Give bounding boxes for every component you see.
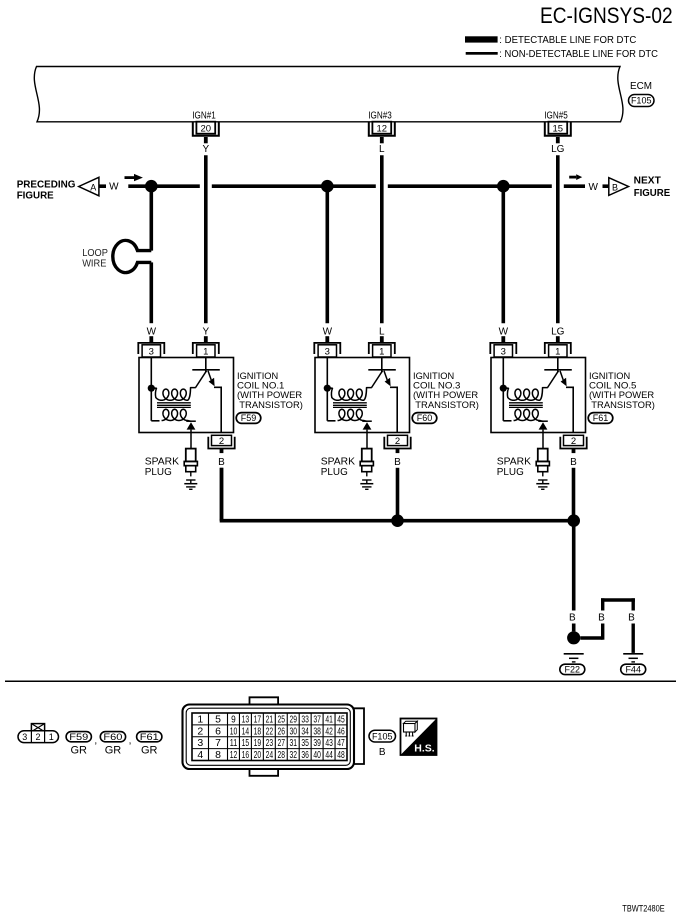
- svg-text:18: 18: [254, 725, 262, 737]
- svg-text:1: 1: [203, 347, 208, 358]
- svg-text:14: 14: [242, 725, 250, 737]
- svg-text:31: 31: [289, 737, 297, 749]
- svg-text:Y: Y: [202, 326, 209, 337]
- svg-text:12: 12: [377, 123, 388, 134]
- svg-text:LG: LG: [551, 326, 565, 337]
- svg-text:PLUG: PLUG: [497, 467, 524, 478]
- svg-text:IGN#3: IGN#3: [368, 111, 392, 122]
- svg-text:1: 1: [379, 347, 384, 358]
- svg-text:7: 7: [215, 737, 221, 749]
- svg-text:37: 37: [313, 713, 321, 725]
- svg-text:F105: F105: [372, 731, 393, 741]
- svg-text:38: 38: [313, 725, 321, 737]
- svg-text:3: 3: [325, 347, 330, 358]
- svg-text:LOOP: LOOP: [82, 248, 108, 259]
- svg-text:15: 15: [242, 737, 250, 749]
- svg-text:LG: LG: [551, 144, 565, 155]
- svg-text:WIRE: WIRE: [82, 258, 107, 269]
- svg-text:B: B: [628, 613, 635, 624]
- svg-text:9: 9: [231, 713, 236, 725]
- svg-text:SPARK: SPARK: [497, 456, 532, 467]
- svg-text:TBWT2480E: TBWT2480E: [622, 903, 664, 914]
- svg-text:,: ,: [129, 736, 132, 747]
- svg-text:EC-IGNSYS-02: EC-IGNSYS-02: [540, 3, 673, 28]
- svg-text:B: B: [569, 613, 576, 624]
- svg-text:TRANSISTOR): TRANSISTOR): [239, 400, 303, 410]
- svg-text:B: B: [570, 457, 577, 468]
- svg-text:13: 13: [242, 713, 250, 725]
- svg-text:15: 15: [553, 123, 564, 134]
- svg-text:25: 25: [278, 713, 286, 725]
- svg-text:IGN#5: IGN#5: [544, 111, 568, 122]
- svg-text:SPARK: SPARK: [145, 456, 180, 467]
- svg-text:11: 11: [230, 737, 238, 749]
- svg-text:TRANSISTOR): TRANSISTOR): [591, 400, 655, 410]
- svg-text:1: 1: [49, 732, 54, 742]
- svg-text:35: 35: [301, 737, 309, 749]
- svg-text:FIGURE: FIGURE: [17, 190, 54, 201]
- svg-text:34: 34: [301, 725, 309, 737]
- svg-text:2: 2: [197, 725, 203, 737]
- svg-text:W: W: [147, 326, 157, 337]
- svg-text:12: 12: [230, 749, 238, 761]
- svg-text:B: B: [379, 747, 386, 758]
- svg-text:A: A: [90, 183, 96, 193]
- svg-text:IGNITION: IGNITION: [589, 371, 630, 381]
- svg-text:1: 1: [555, 347, 560, 358]
- svg-text:F22: F22: [565, 665, 581, 675]
- svg-text:42: 42: [325, 725, 333, 737]
- svg-text:47: 47: [337, 737, 345, 749]
- svg-text:F44: F44: [625, 665, 641, 675]
- svg-text:ECM: ECM: [630, 81, 652, 92]
- svg-text:W: W: [109, 182, 119, 193]
- svg-text:3: 3: [22, 732, 27, 742]
- svg-text:F59: F59: [69, 732, 88, 743]
- svg-text:PLUG: PLUG: [321, 467, 348, 478]
- svg-text:10: 10: [230, 725, 238, 737]
- svg-text:16: 16: [242, 749, 250, 761]
- svg-text:PLUG: PLUG: [145, 467, 172, 478]
- svg-text:TRANSISTOR): TRANSISTOR): [415, 400, 479, 410]
- svg-text:: NON-DETECTABLE LINE FOR DTC: : NON-DETECTABLE LINE FOR DTC: [499, 49, 658, 60]
- svg-text:33: 33: [301, 713, 309, 725]
- svg-text:H.S.: H.S.: [414, 743, 435, 755]
- svg-text:2: 2: [571, 436, 576, 447]
- svg-text:F61: F61: [593, 413, 609, 423]
- svg-text:: DETECTABLE LINE FOR DTC: : DETECTABLE LINE FOR DTC: [499, 35, 636, 46]
- svg-text:SPARK: SPARK: [321, 456, 356, 467]
- svg-text:17: 17: [254, 713, 262, 725]
- svg-text:NEXT: NEXT: [634, 175, 661, 186]
- svg-text:3: 3: [197, 737, 203, 749]
- svg-text:(WITH POWER: (WITH POWER: [589, 390, 655, 400]
- svg-text:29: 29: [289, 713, 297, 725]
- svg-text:30: 30: [289, 725, 297, 737]
- svg-text:45: 45: [337, 713, 345, 725]
- svg-text:B: B: [394, 457, 401, 468]
- svg-text:22: 22: [266, 725, 274, 737]
- svg-text:23: 23: [266, 737, 274, 749]
- svg-text:3: 3: [149, 347, 154, 358]
- svg-text:F60: F60: [417, 413, 433, 423]
- svg-text:Y: Y: [202, 144, 209, 155]
- svg-text:41: 41: [325, 713, 333, 725]
- svg-text:8: 8: [215, 749, 221, 761]
- svg-text:F60: F60: [103, 732, 122, 743]
- svg-text:COIL NO.1: COIL NO.1: [237, 380, 284, 390]
- svg-text:W: W: [499, 326, 509, 337]
- svg-text:B: B: [218, 457, 225, 468]
- svg-text:L: L: [379, 144, 385, 155]
- svg-text:6: 6: [215, 725, 221, 737]
- svg-text:26: 26: [278, 725, 286, 737]
- svg-text:IGNITION: IGNITION: [413, 371, 454, 381]
- svg-text:40: 40: [313, 749, 321, 761]
- svg-text:PRECEDING: PRECEDING: [17, 180, 76, 191]
- svg-text:IGN#1: IGN#1: [192, 111, 216, 122]
- svg-text:(WITH POWER: (WITH POWER: [237, 390, 303, 400]
- svg-text:32: 32: [289, 749, 297, 761]
- svg-text:5: 5: [215, 713, 221, 725]
- svg-text:(WITH POWER: (WITH POWER: [413, 390, 479, 400]
- svg-text:4: 4: [197, 749, 203, 761]
- svg-text:F105: F105: [631, 96, 652, 106]
- svg-text:2: 2: [35, 732, 40, 742]
- svg-text:B: B: [598, 613, 605, 624]
- svg-text:F59: F59: [241, 413, 257, 423]
- svg-text:FIGURE: FIGURE: [634, 188, 671, 199]
- svg-text:COIL NO.3: COIL NO.3: [413, 380, 460, 390]
- svg-text:20: 20: [254, 749, 262, 761]
- svg-text:44: 44: [325, 749, 333, 761]
- svg-text:21: 21: [266, 713, 274, 725]
- svg-text:43: 43: [325, 737, 333, 749]
- svg-text:,: ,: [94, 736, 97, 747]
- svg-text:L: L: [379, 326, 385, 337]
- svg-text:24: 24: [266, 749, 274, 761]
- svg-text:27: 27: [278, 737, 286, 749]
- svg-text:19: 19: [254, 737, 262, 749]
- svg-text:IGNITION: IGNITION: [237, 371, 278, 381]
- svg-text:20: 20: [201, 123, 212, 134]
- svg-text:48: 48: [337, 749, 345, 761]
- svg-text:W: W: [323, 326, 333, 337]
- svg-text:F61: F61: [140, 732, 159, 743]
- svg-text:2: 2: [219, 436, 224, 447]
- svg-text:2: 2: [395, 436, 400, 447]
- svg-text:B: B: [612, 182, 618, 192]
- svg-text:GR: GR: [141, 744, 158, 756]
- svg-text:46: 46: [337, 725, 345, 737]
- svg-text:39: 39: [313, 737, 321, 749]
- svg-text:COIL NO.5: COIL NO.5: [589, 380, 636, 390]
- svg-text:36: 36: [301, 749, 309, 761]
- svg-text:W: W: [588, 182, 598, 193]
- svg-text:28: 28: [278, 749, 286, 761]
- svg-text:GR: GR: [71, 744, 88, 756]
- svg-text:GR: GR: [105, 744, 122, 756]
- svg-text:3: 3: [501, 347, 506, 358]
- svg-text:1: 1: [197, 713, 203, 725]
